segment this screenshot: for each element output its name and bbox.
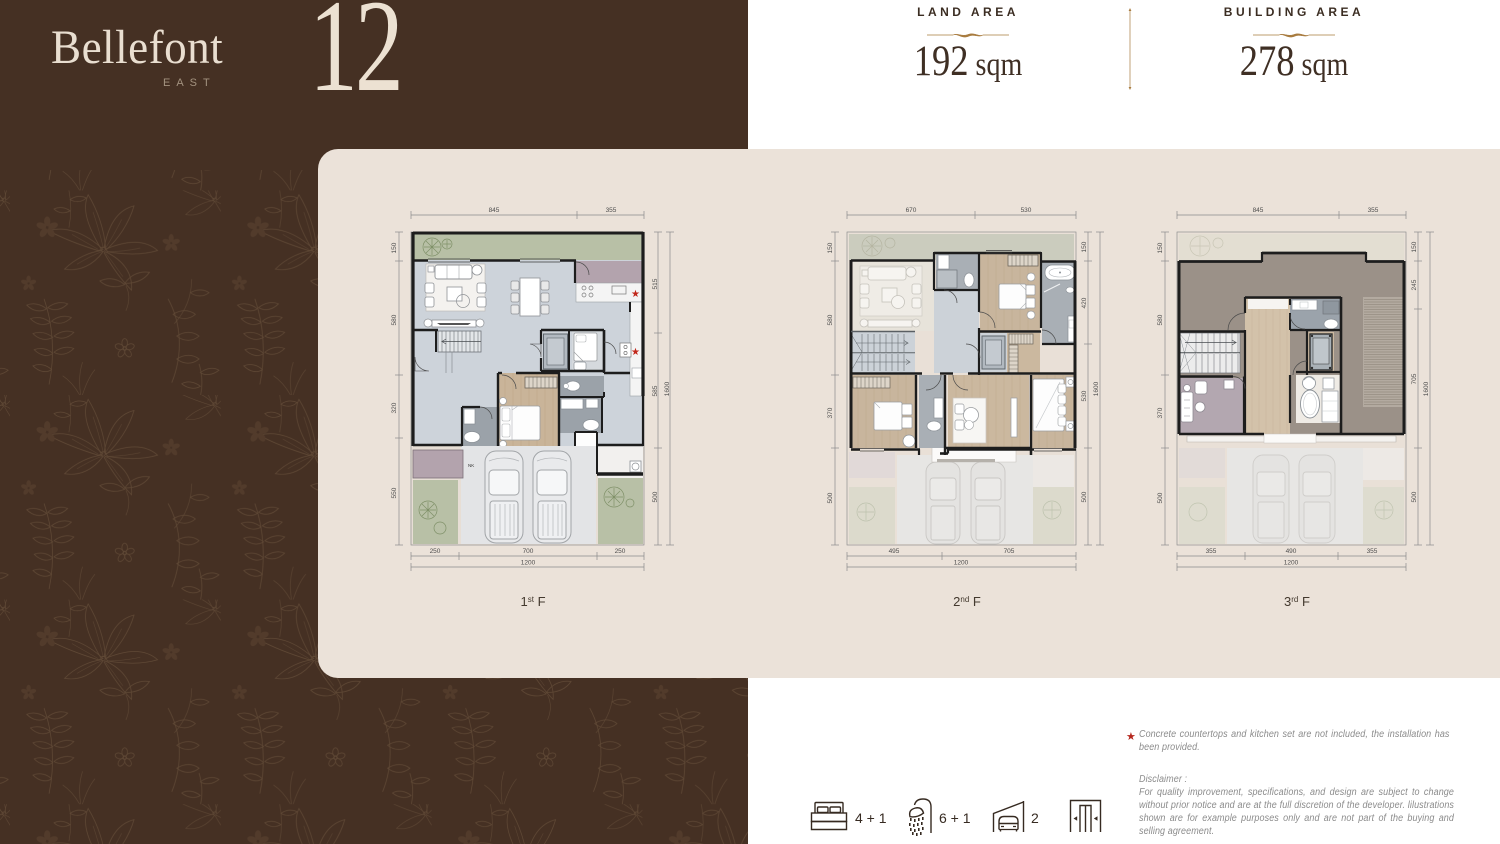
svg-text:1200: 1200 (521, 560, 536, 567)
svg-text:500: 500 (1157, 492, 1164, 503)
svg-text:320: 320 (391, 402, 398, 413)
svg-text:1600: 1600 (1093, 381, 1100, 396)
svg-text:150: 150 (1157, 242, 1164, 253)
svg-text:515: 515 (652, 278, 659, 289)
svg-text:150: 150 (391, 242, 398, 253)
svg-text:495: 495 (889, 548, 900, 555)
svg-text:1200: 1200 (1284, 560, 1299, 567)
svg-text:★: ★ (631, 289, 640, 300)
svg-text:250: 250 (615, 548, 626, 555)
svg-text:355: 355 (1206, 548, 1217, 555)
svg-text:355: 355 (606, 207, 617, 214)
svg-text:370: 370 (1157, 407, 1164, 418)
svg-text:355: 355 (1367, 548, 1378, 555)
svg-text:580: 580 (391, 314, 398, 325)
svg-text:150: 150 (1081, 241, 1088, 252)
svg-text:705: 705 (1004, 548, 1015, 555)
svg-text:245: 245 (1411, 279, 1418, 290)
svg-text:585: 585 (652, 385, 659, 396)
svg-text:845: 845 (1253, 207, 1264, 214)
svg-text:NK: NK (468, 463, 474, 468)
svg-text:500: 500 (1081, 491, 1088, 502)
svg-text:490: 490 (1286, 548, 1297, 555)
svg-text:670: 670 (906, 207, 917, 214)
svg-text:355: 355 (1368, 207, 1379, 214)
svg-text:500: 500 (827, 492, 834, 503)
svg-text:1200: 1200 (954, 560, 969, 567)
svg-text:★: ★ (631, 347, 640, 358)
svg-text:150: 150 (1411, 241, 1418, 252)
svg-text:580: 580 (1157, 314, 1164, 325)
svg-text:530: 530 (1021, 207, 1032, 214)
svg-text:700: 700 (523, 548, 534, 555)
svg-text:500: 500 (652, 491, 659, 502)
svg-text:420: 420 (1081, 297, 1088, 308)
svg-text:150: 150 (827, 242, 834, 253)
svg-text:705: 705 (1411, 373, 1418, 384)
svg-text:550: 550 (391, 487, 398, 498)
svg-text:500: 500 (1411, 491, 1418, 502)
svg-text:370: 370 (827, 407, 834, 418)
svg-text:580: 580 (827, 314, 834, 325)
svg-text:845: 845 (489, 207, 500, 214)
svg-text:1600: 1600 (1423, 381, 1430, 396)
svg-text:250: 250 (430, 548, 441, 555)
svg-text:1600: 1600 (664, 381, 671, 396)
svg-text:530: 530 (1081, 390, 1088, 401)
